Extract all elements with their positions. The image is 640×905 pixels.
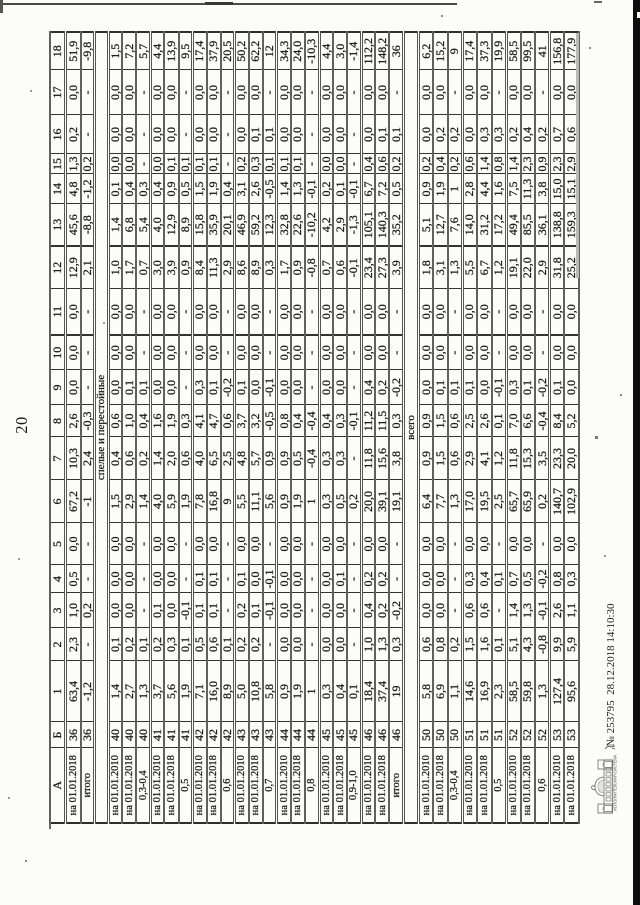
svg-text:ИСПОЛНИТЕЛЬНАЯ·СИСТЕМА: ИСПОЛНИТЕЛЬНАЯ·СИСТЕМА: [613, 754, 618, 811]
